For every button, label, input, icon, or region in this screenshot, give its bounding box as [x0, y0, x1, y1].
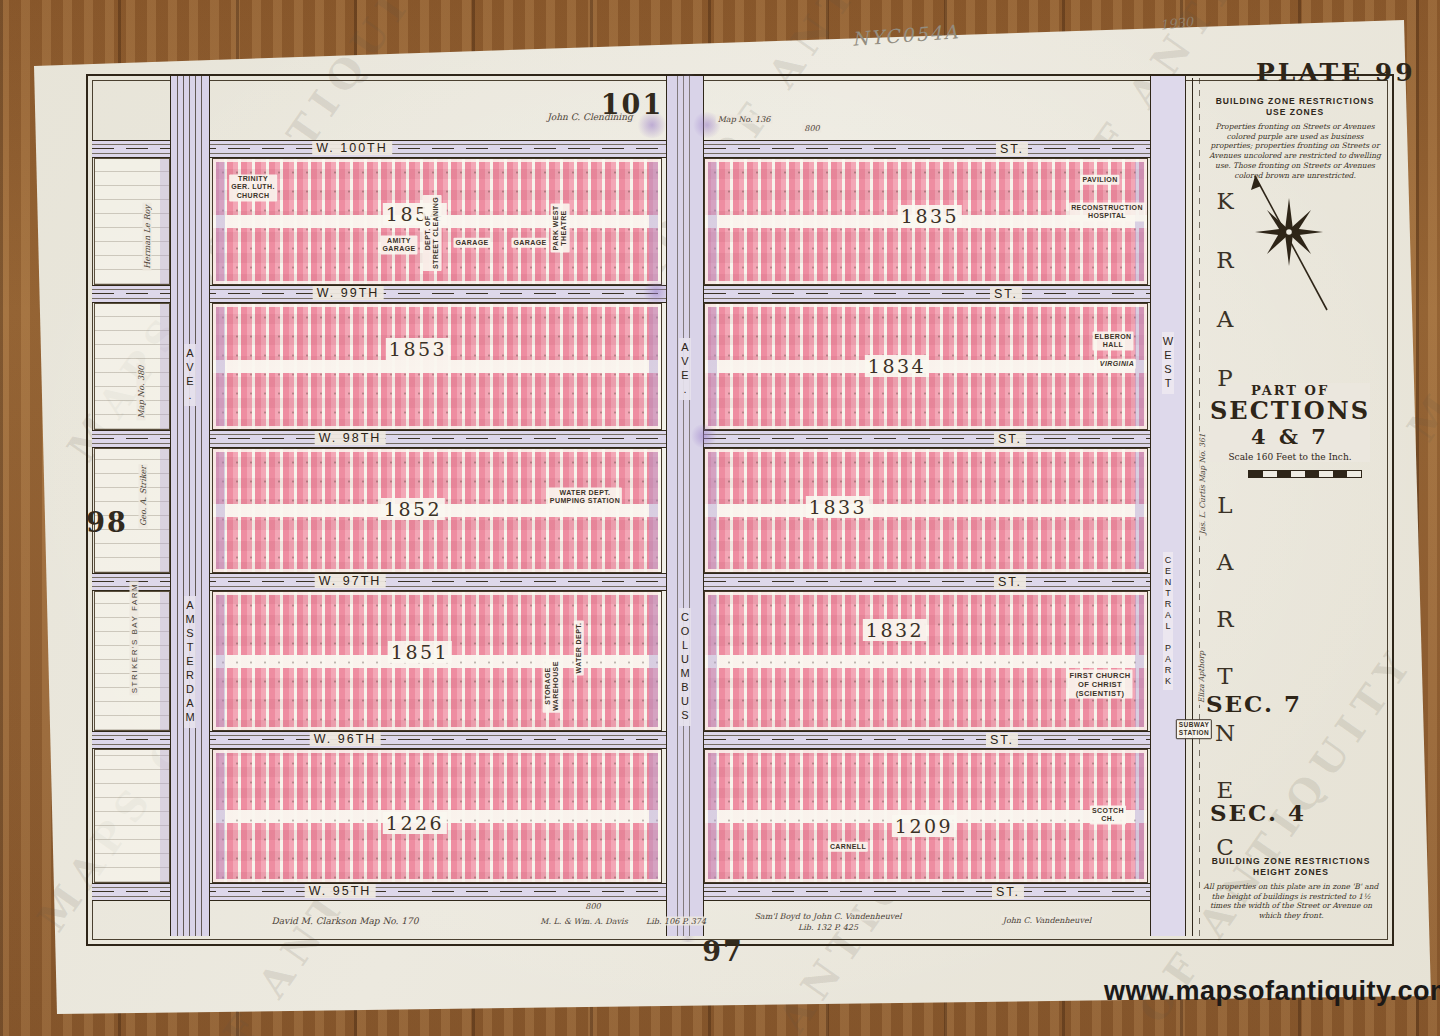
annotation-map-380: Map No. 380 — [137, 364, 146, 421]
street-suffix-w99: ST. — [990, 287, 1022, 301]
block-number: 1209 — [892, 815, 956, 837]
block-number: 1833 — [806, 496, 870, 518]
height-zones-body: All properties on this plate are in zone… — [1202, 882, 1380, 921]
use-zones-body: Properties fronting on Streets or Avenue… — [1206, 122, 1384, 181]
annotation-curtis-map-361: Jas. L. Curtis Map No. 361 — [1198, 431, 1207, 536]
building-garage: GARAGE — [453, 238, 490, 248]
street-w-96th — [92, 731, 1186, 749]
block-number: 1853 — [386, 338, 450, 360]
use-zones-note: BUILDING ZONE RESTRICTIONS USE ZONES Pro… — [1206, 96, 1384, 180]
height-zones-title: BUILDING ZONE RESTRICTIONS — [1202, 856, 1380, 867]
adjacent-plate-number-left: 98 — [86, 507, 128, 538]
building-water-dept: WATER DEPT. — [574, 621, 584, 676]
title-section-numbers: 4 & 7 — [1210, 424, 1370, 449]
street-suffix-w95: ST. — [992, 885, 1024, 899]
annotation-vandenheuvel: John C. Vandenheuvel — [1001, 916, 1094, 925]
block-1833 — [704, 448, 1148, 573]
block-number: 1851 — [388, 641, 452, 663]
annotation-map-136: Map No. 136 — [716, 115, 773, 124]
street-name-w98: W. 98TH — [315, 431, 386, 445]
west-margin-lot — [94, 303, 170, 430]
avenue-columbus: AVE. COLUMBUS — [666, 76, 704, 936]
annotation-geo-striker: Geo. A. Striker — [139, 464, 148, 528]
height-zones-note: BUILDING ZONE RESTRICTIONS HEIGHT ZONES … — [1202, 856, 1380, 921]
annotation-distance-800: 800 — [583, 902, 602, 911]
park-letters-lower: LARTNEC — [1212, 492, 1238, 891]
block-number: 1835 — [898, 205, 962, 227]
use-zones-title: BUILDING ZONE RESTRICTIONS — [1206, 96, 1384, 107]
amsterdam-ave-suffix: AVE. — [184, 344, 196, 406]
photo-of-antique-map: MAPS OF ANTIQUITY MAPS OF ANTIQUITY MAPS… — [0, 0, 1440, 1036]
seller-website-url: www.mapsofantiquity.com — [1104, 976, 1440, 1007]
use-zones-subtitle: USE ZONES — [1206, 107, 1384, 118]
street-suffix-w97: ST. — [994, 575, 1026, 589]
scale-bar — [1248, 470, 1362, 478]
annotation-distance-800: 800 — [802, 124, 821, 133]
annotation-herman-le-roy: Herman Le Roy — [143, 203, 152, 271]
annotation-boyd-deed: Sam'l Boyd to John C. Vandenheuvel — [752, 912, 903, 921]
central-park-wall-line — [1192, 78, 1193, 936]
amsterdam-rail-hatch — [177, 76, 203, 936]
avenue-amsterdam: AVE. AMSTERDAM — [170, 76, 210, 936]
street-name-w100: W. 100TH — [312, 141, 392, 155]
annotation-clarkson-map-170: David M. Clarkson Map No. 170 — [270, 916, 421, 926]
cpw-west-label: WEST — [1162, 332, 1174, 394]
adjacent-plate-number-top: 101 — [601, 89, 663, 120]
street-suffix-w98: ST. — [994, 432, 1026, 446]
block-1853 — [212, 303, 662, 430]
columbus-ave-name: COLUMBUS — [679, 608, 691, 726]
columbus-ave-suffix: AVE. — [679, 338, 691, 400]
building-storage-warehouse: STORAGE WAREHOUSE — [543, 659, 562, 713]
west-margin-lot — [94, 749, 170, 883]
street-name-w97: W. 97TH — [315, 574, 386, 588]
street-name-w95: W. 95TH — [305, 884, 376, 898]
block-number: 1832 — [863, 619, 927, 641]
amsterdam-ave-name: AMSTERDAM — [184, 596, 196, 728]
annotation-lib-132: Lib. 132 P. 425 — [796, 923, 860, 932]
annotation-strikers-bay-farm: STRIKER'S BAY FARM — [130, 581, 139, 695]
height-zones-subtitle: HEIGHT ZONES — [1202, 867, 1380, 878]
building-virginia: VIRGINIA — [1098, 359, 1136, 369]
building-street-cleaning-dept: DEPT. OF STREET CLEANING — [423, 195, 442, 271]
avenue-central-park-west: WEST CENTRAL PARK — [1150, 76, 1186, 936]
annotation-eliza-apthorp: Eliza Apthorp — [1197, 649, 1206, 705]
building-first-church-of-christ: FIRST CHURCH OF CHRIST (SCIENTIST) — [1067, 670, 1132, 699]
west-margin-lot — [94, 158, 170, 285]
building-garage: GARAGE — [511, 238, 548, 248]
block-number: 1834 — [865, 355, 929, 377]
building-amity-garage: AMITY GARAGE — [380, 236, 417, 255]
columbus-rail-hatch — [677, 76, 693, 936]
plate-number: PLATE 99 — [1256, 58, 1416, 87]
purple-zone-blob — [642, 280, 670, 304]
block-1832 — [704, 591, 1148, 731]
purple-zone-blob — [690, 424, 718, 448]
building-carnell: CARNELL — [828, 842, 868, 852]
annotation-davis: M. L. & Wm. A. Davis — [538, 917, 629, 926]
building-reconstruction-hospital: RECONSTRUCTION HOSPITAL — [1069, 203, 1145, 222]
building-pavilion: PAVILION — [1080, 175, 1119, 185]
building-water-dept-pumping-station: WATER DEPT. PUMPING STATION — [548, 488, 622, 507]
building-elberon-hall: ELBERON HALL — [1092, 332, 1133, 351]
building-park-west-theatre: PARK WEST THEATRE — [551, 203, 570, 252]
block-number: 1852 — [381, 498, 445, 520]
street-name-w99: W. 99TH — [313, 286, 384, 300]
compass-rose-icon — [1237, 168, 1345, 318]
street-suffix-w100: ST. — [996, 142, 1028, 156]
building-trinity-church: TRINITY GER. LUTH. CHURCH — [229, 174, 277, 201]
adjacent-plate-number-bottom: 97 — [702, 936, 744, 967]
street-name-w96: W. 96TH — [310, 732, 381, 746]
building-scotch-church: SCOTCH CH. — [1090, 806, 1126, 825]
title-scale-note: Scale 160 Feet to the Inch. — [1210, 452, 1370, 462]
street-suffix-w96: ST. — [986, 733, 1018, 747]
block-number: 1226 — [383, 812, 447, 834]
annotation-lib-106: Lib. 106 P. 374 — [644, 917, 708, 926]
park-letters-upper: KRAP — [1212, 188, 1238, 424]
cpw-name-label: CENTRAL PARK — [1163, 552, 1173, 690]
subway-station-label: SUBWAY STATION — [1176, 719, 1212, 739]
